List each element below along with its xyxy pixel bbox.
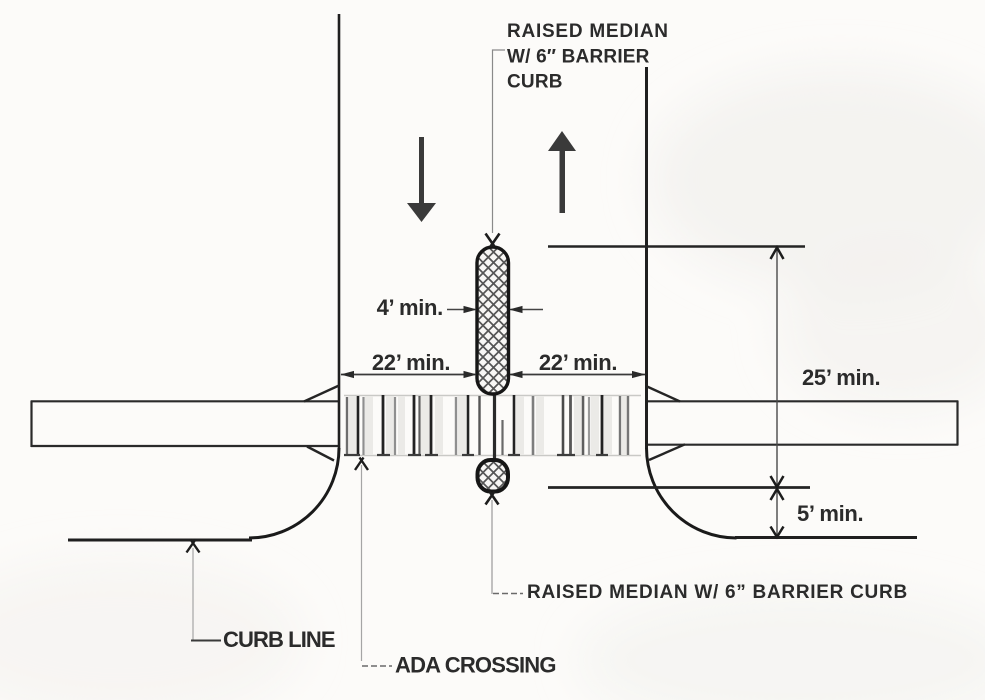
svg-text:25’ min.: 25’ min. (802, 365, 880, 390)
svg-text:CURB: CURB (507, 72, 563, 93)
svg-text:5’ min.: 5’ min. (797, 501, 863, 526)
svg-text:22’ min.: 22’ min. (539, 350, 617, 375)
svg-text:4’ min.: 4’ min. (377, 295, 443, 320)
svg-text:22’ min.: 22’ min. (372, 350, 450, 375)
svg-text:RAISED MEDIAN: RAISED MEDIAN (507, 21, 669, 42)
svg-text:RAISED MEDIAN W/ 6” BARRIER CU: RAISED MEDIAN W/ 6” BARRIER CURB (527, 582, 908, 603)
svg-text:ADA CROSSING: ADA CROSSING (395, 653, 556, 678)
svg-text:CURB LINE: CURB LINE (223, 627, 335, 652)
svg-text:W/ 6″ BARRIER: W/ 6″ BARRIER (507, 47, 650, 68)
